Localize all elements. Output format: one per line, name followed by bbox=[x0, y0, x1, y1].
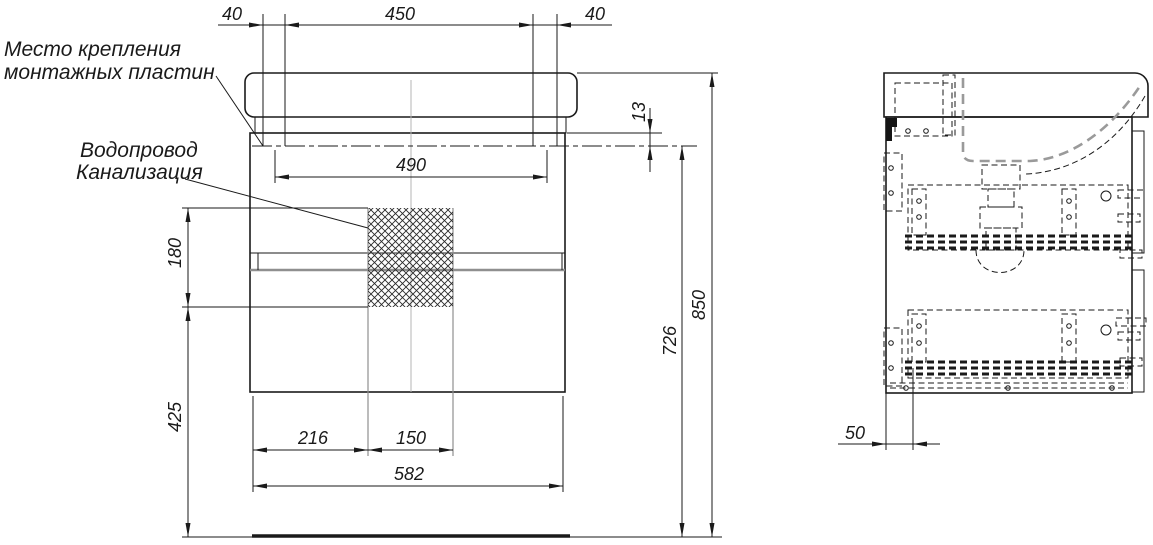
mounting-leader-line bbox=[216, 76, 263, 146]
front-view: 40 450 40 490 216 150 582 180 425 13 726… bbox=[4, 4, 722, 537]
dim-top-right-40: 40 bbox=[585, 4, 605, 24]
hidden-right-fittings bbox=[904, 190, 1146, 390]
plate-extension-lines bbox=[263, 14, 557, 146]
mounting-label-line2: монтажных пластин bbox=[4, 61, 215, 84]
hidden-drain-assembly bbox=[976, 165, 1024, 273]
dim-726: 726 bbox=[660, 325, 680, 356]
dim-216: 216 bbox=[297, 428, 329, 448]
left-dim-lines bbox=[182, 208, 368, 537]
dim-13: 13 bbox=[629, 102, 649, 122]
dim-top-left-40: 40 bbox=[222, 4, 242, 24]
dim-50-group: 50 bbox=[838, 368, 940, 450]
plumbing-label-line1: Водопровод bbox=[80, 139, 198, 162]
side-upper-drawer-front bbox=[1132, 131, 1144, 253]
hidden-lower-drawer bbox=[890, 310, 1133, 388]
dim-180: 180 bbox=[165, 238, 185, 268]
dim-425: 425 bbox=[165, 401, 185, 432]
hidden-back-mounting-plate bbox=[886, 75, 955, 141]
side-lower-drawer-front bbox=[1132, 270, 1144, 392]
dim-490: 490 bbox=[396, 155, 426, 175]
plumbing-label-line2: Канализация bbox=[76, 161, 203, 184]
hidden-upper-drawer bbox=[905, 185, 1133, 250]
dim-850: 850 bbox=[689, 290, 709, 320]
technical-drawing-canvas: 40 450 40 490 216 150 582 180 425 13 726… bbox=[0, 0, 1153, 545]
vanity-drawing: 40 450 40 490 216 150 582 180 425 13 726… bbox=[0, 0, 1153, 545]
dim-50: 50 bbox=[845, 423, 865, 443]
plumbing-leader-line bbox=[185, 179, 368, 228]
dim-150: 150 bbox=[396, 428, 426, 448]
side-cabinet-body bbox=[886, 117, 1132, 393]
side-sink-top bbox=[884, 73, 1148, 117]
hidden-basin-profile bbox=[963, 78, 1140, 161]
hidden-basin-inner-curve bbox=[1026, 96, 1145, 174]
annotation-mounting-plates: Место крепления монтажных пластин bbox=[4, 38, 215, 84]
mounting-label-line1: Место крепления bbox=[4, 38, 181, 61]
annotation-plumbing: Водопровод Канализация bbox=[76, 139, 203, 184]
dim-top-450: 450 bbox=[385, 4, 415, 24]
side-view: 50 bbox=[838, 73, 1148, 450]
plumbing-hatch-area bbox=[368, 208, 453, 307]
dim-582: 582 bbox=[394, 464, 424, 484]
